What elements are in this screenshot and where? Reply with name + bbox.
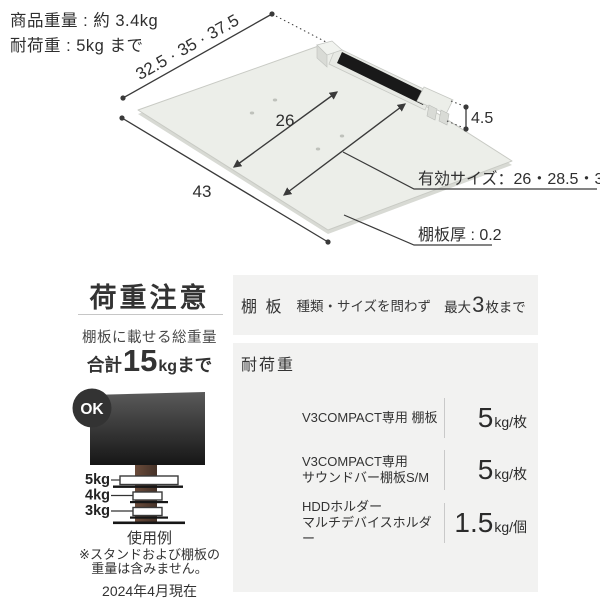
dim-dot [119, 115, 124, 120]
load-value-unit: kg/枚 [494, 464, 527, 484]
shelf-weight-label: 5kg [85, 472, 110, 488]
total-unit: kg [158, 358, 177, 376]
tv-stand-illustration: 5kg 4kg 3kg OK [55, 385, 230, 532]
shelf-row-header: 棚 板 [241, 293, 283, 317]
as-of-date: 2024年4月現在 [33, 581, 266, 601]
total-weight-line: 合計 15 kg まで [33, 343, 266, 379]
load-row: V3COMPACT専用 棚板 5 kg/枚 [302, 396, 527, 440]
dim-dot [463, 126, 468, 131]
screw-hole [340, 135, 344, 138]
total-value: 15 [123, 343, 157, 379]
dim-inner-label: 26 [276, 111, 295, 130]
load-row: V3COMPACT専用 サウンドバー棚板S/M 5 kg/枚 [302, 448, 527, 492]
label-line: HDDホルダー [302, 499, 444, 515]
shelf-weight-label: 4kg [85, 488, 110, 504]
load-row-label: HDDホルダー マルチデバイスホルダー [302, 499, 444, 547]
load-row: HDDホルダー マルチデバイスホルダー 1.5 kg/個 [302, 501, 527, 545]
dim-width-label: 43 [193, 182, 212, 201]
load-value-number: 1.5 [454, 507, 493, 539]
shelf-count-panel: 棚 板 種類・サイズを問わず 最大 3 枚まで [233, 275, 538, 335]
shelf-board-low [133, 508, 162, 516]
dim-dot [325, 239, 330, 244]
load-value-unit: kg/枚 [494, 412, 527, 432]
shelf-line [130, 517, 168, 519]
load-row-value: 5 kg/枚 [445, 454, 527, 486]
shelf-line [130, 501, 168, 503]
note-line-2: 重量は含みません。 [33, 558, 266, 577]
load-row-label: V3COMPACT専用 サウンドバー棚板S/M [302, 454, 444, 486]
total-suffix: まで [177, 352, 212, 377]
dim-ext-dotted [272, 14, 326, 42]
dim-dot [463, 104, 468, 109]
shelf-weight-label: 3kg [85, 503, 110, 519]
load-value-number: 5 [478, 454, 494, 486]
shelf-board-mid [133, 492, 162, 500]
dim-depth-label: 32.5 · 35 · 37.5 [132, 11, 242, 84]
caution-divider [78, 314, 223, 315]
dim-leader-dotted [451, 101, 464, 106]
board-surface [138, 43, 512, 230]
label-line: V3COMPACT専用 [302, 454, 444, 470]
load-panel-header: 耐荷重 [241, 351, 295, 375]
load-row-value: 5 kg/枚 [445, 402, 527, 434]
caution-title: 荷重注意 [33, 276, 266, 315]
screw-hole [250, 112, 254, 115]
load-value-unit: kg/個 [494, 517, 527, 537]
screw-hole [273, 99, 277, 102]
shelf-board-top [120, 476, 178, 485]
dim-height-label: 4.5 [471, 110, 493, 127]
total-prefix: 合計 [87, 352, 122, 377]
load-row-label: V3COMPACT専用 棚板 [302, 410, 444, 426]
stand-base-line [113, 522, 185, 525]
max-suffix: 枚まで [485, 296, 526, 316]
label-line: マルチデバイスホルダー [302, 515, 444, 547]
shelf-row-max: 最大 3 枚まで [444, 292, 526, 318]
shelf-line [113, 486, 183, 488]
max-prefix: 最大 [444, 296, 471, 316]
ok-badge-label: OK [80, 401, 104, 418]
load-capacity-panel: 耐荷重 V3COMPACT専用 棚板 5 kg/枚 V3COMPACT専用 サウ… [233, 343, 538, 592]
max-count: 3 [472, 292, 484, 318]
load-row-value: 1.5 kg/個 [445, 507, 527, 539]
label-line: サウンドバー棚板S/M [302, 470, 444, 486]
board-thickness-label: 棚板厚 : 0.2 [418, 226, 502, 244]
screw-hole [316, 148, 320, 151]
shelf-row-condition: 種類・サイズを問わず [296, 295, 431, 315]
dim-dot [269, 11, 274, 16]
dim-dot [120, 95, 125, 100]
effective-size-label: 有効サイズ：26・28.5・31 [418, 170, 600, 188]
load-value-number: 5 [478, 402, 494, 434]
shelf-dimension-diagram: 32.5 · 35 · 37.5 43 26 4.5 有効サイズ：26・28.5… [0, 0, 600, 265]
